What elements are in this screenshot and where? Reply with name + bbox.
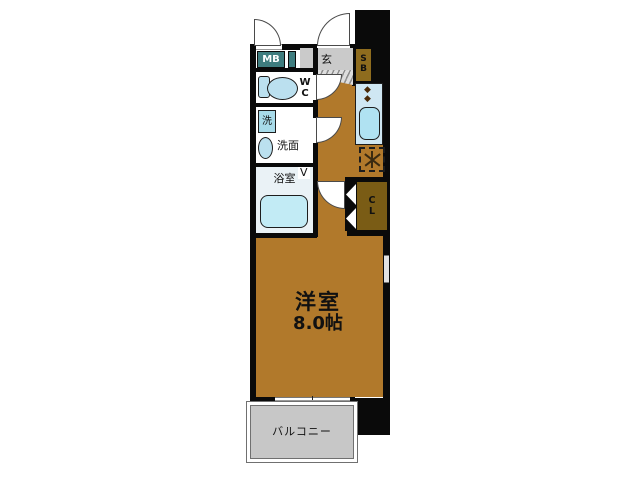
main-room-area: 8.0帖 [293, 314, 343, 334]
main-room-top-wall-left [250, 233, 317, 238]
balcony-inner: バルコニー [250, 405, 354, 459]
shoe-box: S B [356, 49, 371, 81]
burner-icon: ◆ [364, 94, 371, 104]
bathtub-icon [260, 195, 308, 228]
toilet-room: W C [256, 72, 313, 103]
vanity-sink-icon [258, 137, 273, 159]
closet-fold-door-icon [346, 184, 356, 205]
closet-fold-door-icon [346, 208, 356, 229]
entrance-label: 玄 [321, 54, 332, 66]
meter-box: MB [257, 51, 285, 68]
washer-label: 洗 [262, 116, 272, 127]
closet-letter: L [369, 207, 375, 217]
meter-box-strip [288, 51, 296, 68]
washroom-label: 洗面 [277, 140, 299, 152]
bathroom-fold-door-icon: V [298, 167, 310, 179]
kitchen-counter: ◆ ◆ [355, 83, 383, 145]
washer-space: 洗 [258, 110, 276, 133]
main-room-name: 洋室 [295, 291, 341, 314]
washroom: 洗 洗面 [256, 107, 313, 163]
pillar-top-block [355, 10, 390, 48]
floorplan-canvas: MB 玄 S B W C 洗 洗面 浴室 V [0, 0, 640, 480]
shoe-box-letter: B [360, 65, 367, 75]
main-room-top-wall-right [347, 230, 390, 236]
kitchen-sink-icon [359, 107, 380, 140]
toilet-letter: C [301, 88, 308, 99]
bathroom-label: 浴室 [274, 173, 296, 185]
closet-letter: C [369, 196, 376, 206]
meter-box-label: MB [262, 54, 280, 65]
main-room-label-block: 洋室 8.0帖 [263, 286, 373, 338]
entrance-door-swing-icon [317, 13, 350, 46]
balcony: バルコニー [246, 401, 358, 463]
bathroom: 浴室 V [256, 167, 313, 233]
balcony-label: バルコニー [272, 426, 332, 438]
toilet-bowl-icon [267, 77, 298, 100]
closet: C L [357, 182, 387, 231]
meterbox-door-swing-icon [254, 19, 281, 46]
refrigerator-cross-icon [371, 151, 373, 168]
toilet-letter: W [299, 77, 310, 88]
refrigerator-space [359, 147, 385, 172]
window-right-icon [384, 255, 389, 283]
closet-fold-door-frame [345, 182, 357, 231]
